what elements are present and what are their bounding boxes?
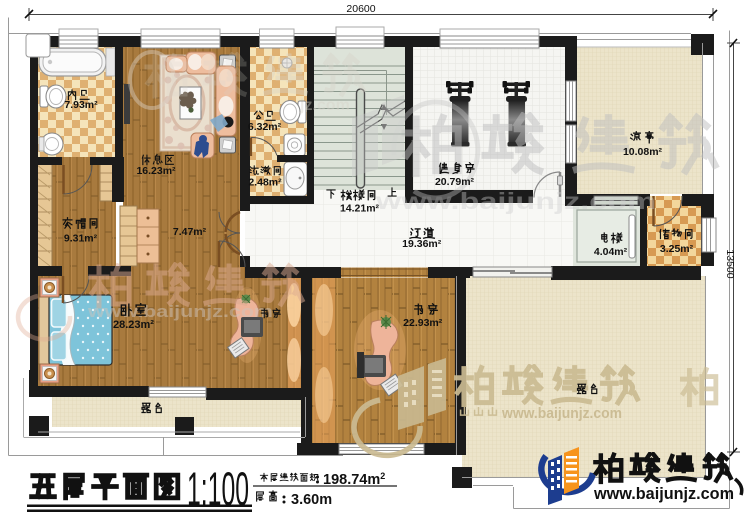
svg-text:www.baijunjz.com: www.baijunjz.com (375, 188, 656, 214)
svg-text:16.23m²: 16.23m² (136, 165, 176, 177)
svg-text:28.23m²: 28.23m² (113, 319, 154, 331)
svg-text:20600: 20600 (346, 3, 375, 15)
svg-text:9.31m²: 9.31m² (64, 233, 98, 245)
svg-text:14.21m²: 14.21m² (340, 203, 380, 215)
svg-text:19.36m²: 19.36m² (402, 238, 442, 250)
svg-text:4.04m²: 4.04m² (594, 246, 628, 258)
svg-text:10.08m²: 10.08m² (623, 146, 663, 158)
svg-text:jz.com: jz.com (299, 97, 350, 114)
svg-text:6.32m²: 6.32m² (248, 121, 282, 133)
svg-text:7.93m²: 7.93m² (64, 99, 98, 111)
svg-text:7.47m²: 7.47m² (173, 226, 207, 238)
svg-text:3.25m²: 3.25m² (660, 243, 694, 255)
svg-text:1:100: 1:100 (187, 462, 249, 515)
svg-text:www.baijunjz.com: www.baijunjz.com (501, 405, 622, 422)
svg-text:22.93m²: 22.93m² (403, 317, 443, 329)
svg-text:3.60m: 3.60m (291, 492, 332, 508)
svg-text:www.baijunjz.com: www.baijunjz.com (593, 484, 734, 503)
svg-text:2.48m²: 2.48m² (248, 177, 282, 189)
svg-text:13500: 13500 (724, 249, 736, 278)
svg-text:20.79m²: 20.79m² (435, 176, 475, 188)
